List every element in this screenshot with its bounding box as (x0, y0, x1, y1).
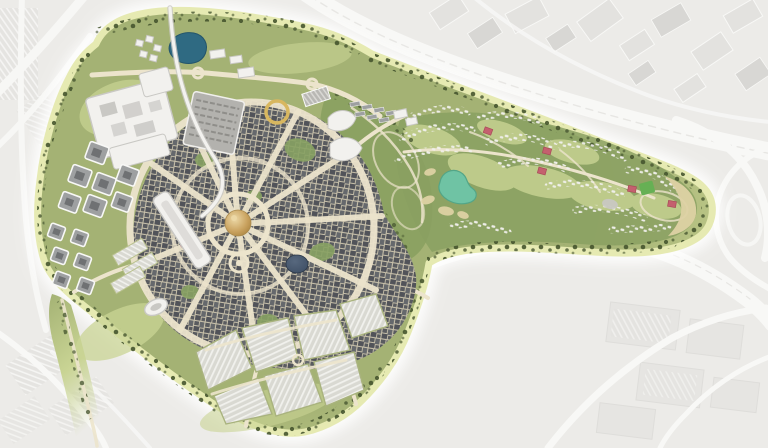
central-dome (225, 210, 251, 236)
car-park-deck (183, 91, 245, 155)
screenshot-root (0, 0, 768, 448)
masterplan-aerial-render (0, 0, 768, 448)
dome-highlight (231, 215, 237, 221)
navy-dome (286, 255, 308, 273)
